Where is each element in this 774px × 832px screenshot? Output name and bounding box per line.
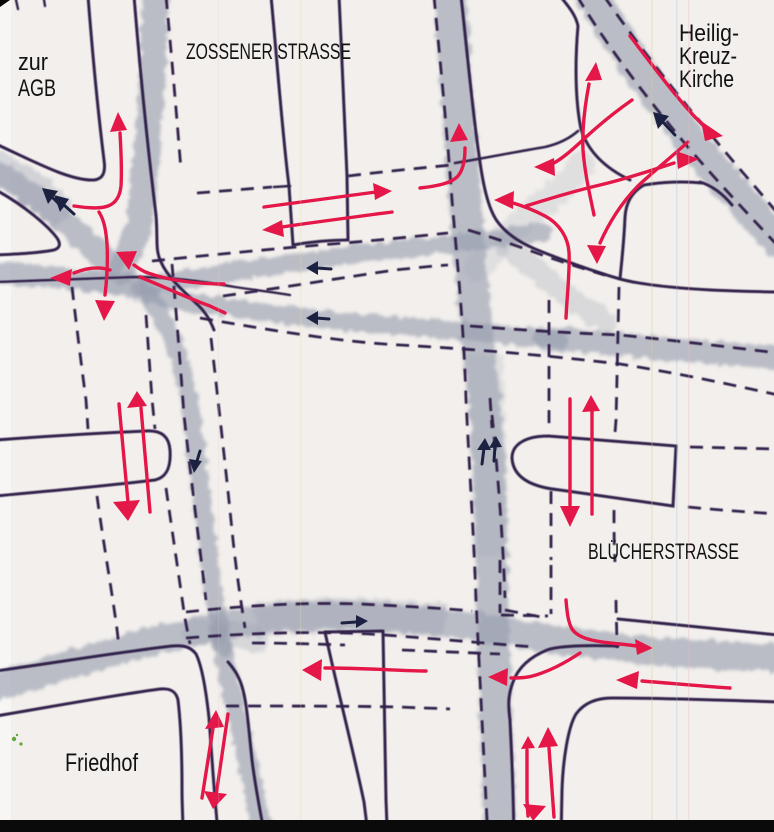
svg-text:Kirche: Kirche	[679, 66, 734, 93]
svg-text:Friedhof: Friedhof	[65, 749, 138, 777]
svg-text:BLÜCHERSTRASSE: BLÜCHERSTRASSE	[588, 539, 739, 564]
svg-text:AGB: AGB	[18, 75, 56, 102]
svg-text:ZOSSENER STRASSE: ZOSSENER STRASSE	[186, 39, 351, 64]
svg-text:zur: zur	[18, 49, 48, 76]
